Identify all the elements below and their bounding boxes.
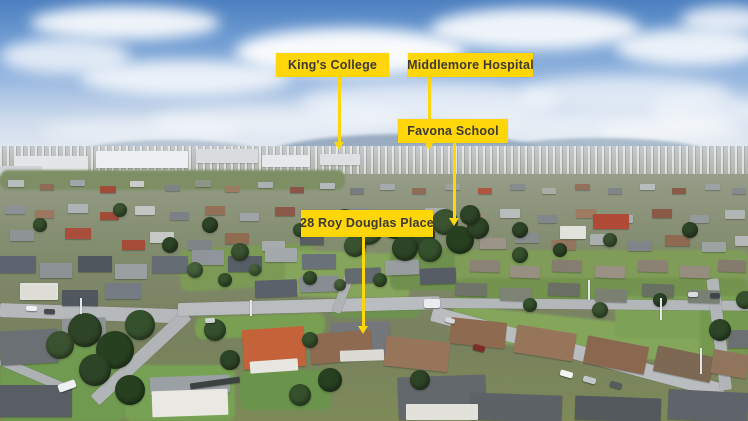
house xyxy=(0,256,36,273)
tree xyxy=(512,222,528,238)
tree xyxy=(115,375,145,405)
callout-pointer-line xyxy=(338,77,341,143)
house xyxy=(548,282,580,296)
industrial-building xyxy=(196,149,258,163)
house xyxy=(255,279,298,297)
house xyxy=(470,392,563,421)
house xyxy=(152,256,188,273)
house xyxy=(680,265,710,278)
tree xyxy=(410,370,430,390)
house xyxy=(122,240,145,250)
house xyxy=(628,241,652,251)
callout-text: Favona School xyxy=(407,125,499,138)
tree xyxy=(418,238,442,262)
house xyxy=(35,210,54,218)
house xyxy=(732,188,746,194)
house xyxy=(718,260,746,273)
house xyxy=(735,236,748,246)
house xyxy=(575,396,662,421)
tree xyxy=(302,332,318,348)
tree xyxy=(603,233,617,247)
industrial-building xyxy=(320,154,360,165)
cloud xyxy=(30,6,220,40)
car xyxy=(44,309,55,314)
tree xyxy=(187,262,203,278)
grass-patch xyxy=(240,370,330,410)
car xyxy=(688,292,698,297)
house xyxy=(195,180,211,187)
house xyxy=(188,240,211,250)
house xyxy=(560,226,586,239)
house xyxy=(667,389,748,421)
tree xyxy=(202,217,218,233)
house xyxy=(575,184,590,190)
house xyxy=(170,212,189,220)
tree xyxy=(392,235,418,261)
house xyxy=(385,259,420,275)
cloud xyxy=(430,8,640,50)
house xyxy=(470,259,500,272)
house xyxy=(510,184,525,190)
callout-text: Middlemore Hospital xyxy=(407,59,534,72)
house xyxy=(258,182,273,188)
car xyxy=(424,299,440,308)
tree xyxy=(682,222,698,238)
street-light-pole xyxy=(588,280,590,300)
house xyxy=(78,256,112,272)
house xyxy=(265,248,297,262)
tree xyxy=(373,273,387,287)
tree xyxy=(46,331,74,359)
house xyxy=(420,267,457,284)
car xyxy=(26,306,37,311)
house xyxy=(538,215,557,223)
tree xyxy=(220,350,240,370)
house xyxy=(105,283,141,299)
tree xyxy=(113,203,127,217)
callout-text: King's College xyxy=(288,59,377,72)
house xyxy=(275,207,295,216)
street-light-pole xyxy=(250,300,252,316)
house xyxy=(240,213,259,221)
callout-arrow-down-icon xyxy=(358,326,368,334)
house-wall xyxy=(152,389,229,418)
house xyxy=(320,183,335,189)
house xyxy=(40,263,72,278)
tree xyxy=(218,273,232,287)
street-light-pole xyxy=(700,348,702,374)
callout-pointer-line xyxy=(362,237,365,327)
tree xyxy=(553,243,567,257)
car xyxy=(710,293,720,298)
house xyxy=(725,210,745,219)
house xyxy=(608,188,622,194)
house xyxy=(65,228,91,239)
tree xyxy=(289,384,311,406)
house xyxy=(593,214,629,229)
house xyxy=(595,288,627,302)
house-wall xyxy=(22,286,56,298)
tree xyxy=(736,291,748,309)
callout-text: 28 Roy Douglas Place xyxy=(300,217,434,230)
house xyxy=(70,180,85,186)
tree xyxy=(231,243,249,261)
tree xyxy=(523,298,537,312)
house xyxy=(455,282,487,296)
house xyxy=(728,330,748,348)
house xyxy=(5,205,25,214)
house xyxy=(10,230,34,241)
tree xyxy=(592,302,608,318)
house xyxy=(225,186,239,192)
house xyxy=(640,184,655,190)
house xyxy=(40,184,54,190)
tree xyxy=(303,271,317,285)
callout-arrow-down-icon xyxy=(424,142,434,150)
street-light-pole xyxy=(660,298,662,320)
house xyxy=(595,265,625,278)
house xyxy=(412,188,426,194)
callout-arrow-down-icon xyxy=(334,142,344,150)
house xyxy=(542,188,556,194)
tree xyxy=(33,218,47,232)
house xyxy=(135,206,155,215)
car xyxy=(205,318,215,323)
callout-label: Middlemore Hospital xyxy=(408,53,533,77)
cloud xyxy=(0,38,130,74)
house-wall xyxy=(340,349,384,362)
house xyxy=(705,184,720,190)
house xyxy=(702,242,726,252)
callout-arrow-down-icon xyxy=(449,218,459,226)
house xyxy=(638,259,668,272)
house xyxy=(672,188,686,194)
house xyxy=(165,185,180,191)
tree xyxy=(318,368,342,392)
callout-pointer-line xyxy=(453,143,456,219)
house xyxy=(380,184,395,190)
house xyxy=(115,264,147,279)
house xyxy=(500,209,520,218)
callout-label: Favona School xyxy=(398,119,508,143)
house xyxy=(652,209,672,218)
tree xyxy=(79,354,111,386)
tree xyxy=(249,264,261,276)
tree xyxy=(512,247,528,263)
tree xyxy=(460,205,480,225)
callout-label: 28 Roy Douglas Place xyxy=(301,210,433,237)
tree xyxy=(125,310,155,340)
tree xyxy=(709,319,731,341)
industrial-building xyxy=(262,155,310,167)
street-light-pole xyxy=(80,298,82,314)
house xyxy=(480,238,506,249)
industrial-building xyxy=(96,151,188,168)
house xyxy=(290,187,304,193)
tree xyxy=(334,279,346,291)
house xyxy=(205,206,225,215)
house xyxy=(68,204,88,213)
house xyxy=(130,181,144,187)
house xyxy=(350,188,364,194)
house xyxy=(552,259,582,272)
aerial-photo: King's College Middlemore Hospital Favon… xyxy=(0,0,748,421)
tree xyxy=(162,237,178,253)
house-wall xyxy=(406,404,478,420)
house xyxy=(8,180,24,187)
house xyxy=(302,254,336,269)
house xyxy=(478,188,492,194)
callout-label: King's College xyxy=(276,53,389,77)
house xyxy=(100,186,116,193)
house xyxy=(510,265,540,278)
